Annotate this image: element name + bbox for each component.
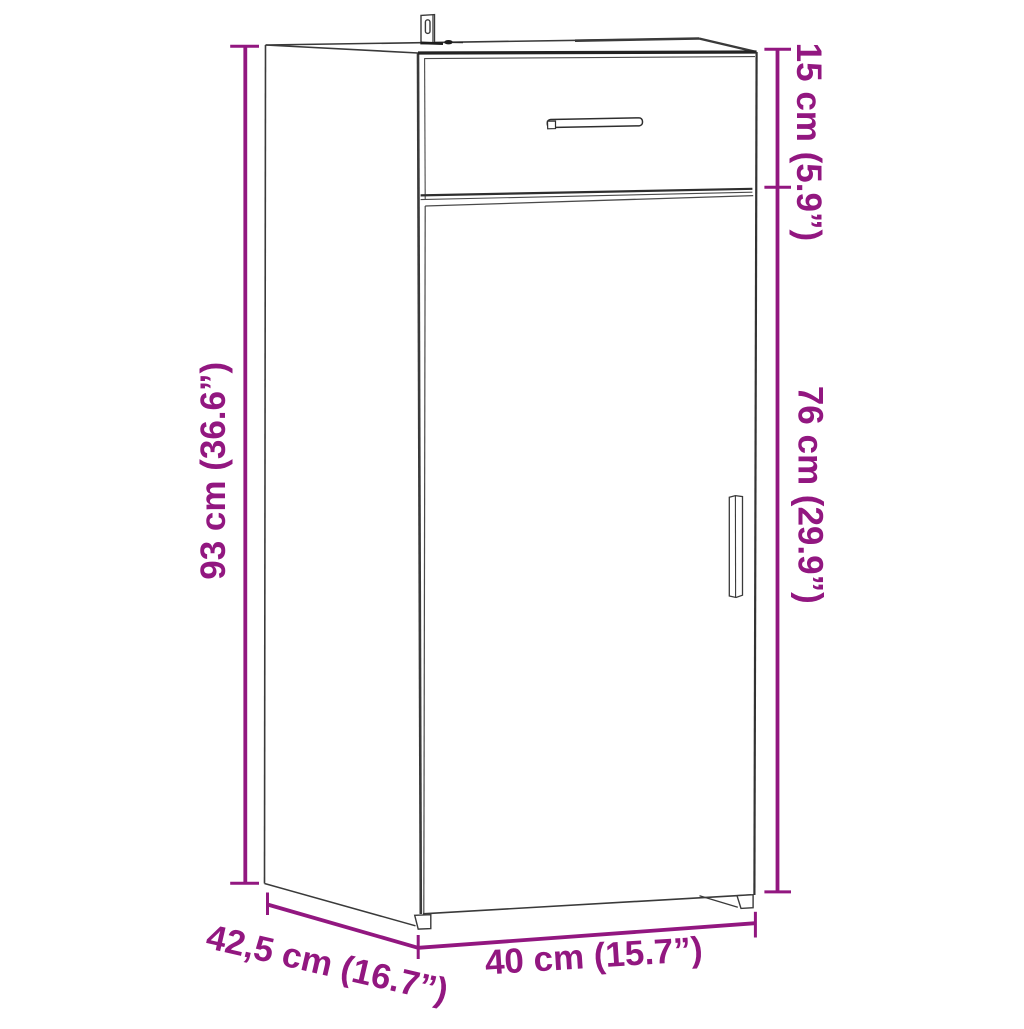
svg-text:93 cm (36.6”): 93 cm (36.6”) xyxy=(194,362,233,580)
svg-text:76 cm (29.9”): 76 cm (29.9”) xyxy=(790,386,829,604)
svg-text:15 cm (5.9”): 15 cm (5.9”) xyxy=(789,43,828,241)
